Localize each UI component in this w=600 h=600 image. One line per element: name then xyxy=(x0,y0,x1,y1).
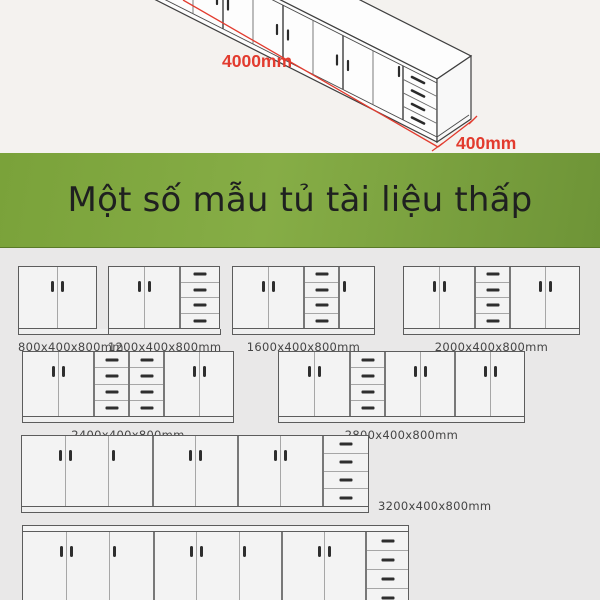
door-handle xyxy=(189,450,192,461)
hero-image: 4000mm 400mm xyxy=(0,0,600,153)
cabinet-door xyxy=(155,532,196,600)
cabinet-door xyxy=(511,267,545,328)
door-handle xyxy=(494,366,497,377)
cabinet-body xyxy=(108,266,220,329)
cabinet-body xyxy=(232,266,375,329)
drawer-handle xyxy=(381,597,394,600)
door-handle xyxy=(284,450,287,461)
cabinet-drawer xyxy=(95,400,128,416)
drawers-section xyxy=(179,267,219,328)
doors-section xyxy=(279,352,349,416)
cabinet-2400: 2400x400x800mm xyxy=(22,351,234,442)
drawer-handle xyxy=(140,358,153,361)
cabinet-door xyxy=(144,267,180,328)
cabinet-door xyxy=(545,267,580,328)
cabinet-door xyxy=(279,352,314,416)
cabinet-door xyxy=(386,352,420,416)
cabinet-plinth xyxy=(108,329,221,335)
drawer-handle xyxy=(340,478,353,481)
cabinet-drawer xyxy=(324,488,368,506)
cabinet-drawer xyxy=(181,297,219,313)
drawers-section xyxy=(322,436,368,506)
cabinet-door xyxy=(109,532,153,600)
drawer-handle xyxy=(315,288,328,291)
drawer-handle xyxy=(381,559,394,562)
doors-section xyxy=(404,267,474,328)
cabinet-drawer xyxy=(351,352,384,367)
cabinet-drawer xyxy=(324,436,368,453)
door-handle xyxy=(414,366,417,377)
doors-section xyxy=(233,267,303,328)
cabinet-drawer xyxy=(305,313,338,329)
door-handle xyxy=(424,366,427,377)
cabinet-drawer xyxy=(324,471,368,489)
cabinet-door xyxy=(233,267,268,328)
door-handle xyxy=(318,546,321,557)
cabinet-door xyxy=(165,352,199,416)
doors-section xyxy=(19,267,96,328)
drawer-handle xyxy=(340,496,353,499)
drawer-handle xyxy=(486,319,499,322)
cabinet-door xyxy=(314,352,350,416)
cabinet-body xyxy=(22,531,409,600)
doors-section xyxy=(109,267,179,328)
door-handle xyxy=(243,546,246,557)
cabinet-drawer xyxy=(351,384,384,400)
cabinet-door xyxy=(404,267,439,328)
drawer-handle xyxy=(340,461,353,464)
cabinet-drawer xyxy=(305,297,338,313)
cabinet-1200: 1200x400x800mm xyxy=(108,266,221,354)
door-handle xyxy=(274,450,277,461)
cabinet-door xyxy=(239,436,280,506)
cabinet-door xyxy=(195,436,237,506)
cabinet-drawer xyxy=(95,367,128,383)
door-handle xyxy=(148,281,151,292)
cabinet-door xyxy=(23,352,58,416)
doors-section xyxy=(454,352,524,416)
catalog-canvas: 800x400x800mm1200x400x800mm1600x400x800m… xyxy=(0,248,600,600)
doors-section xyxy=(281,532,365,600)
cabinet-door xyxy=(340,267,374,328)
cabinet-drawer xyxy=(130,384,163,400)
drawer-handle xyxy=(381,540,394,543)
drawers-section xyxy=(93,352,128,416)
door-handle xyxy=(61,281,64,292)
cabinet-door xyxy=(268,267,304,328)
cabinet-door xyxy=(19,267,57,328)
door-handle xyxy=(318,366,321,377)
cabinet-drawer xyxy=(130,352,163,367)
door-handle xyxy=(443,281,446,292)
door-handle xyxy=(51,281,54,292)
cabinet-3600-clipped xyxy=(22,525,409,600)
drawer-handle xyxy=(140,391,153,394)
drawer-handle xyxy=(194,273,207,276)
isometric-cabinet-drawing: 4000mm 400mm xyxy=(0,0,600,153)
cabinet-drawer xyxy=(95,384,128,400)
door-handle xyxy=(193,366,196,377)
door-handle xyxy=(272,281,275,292)
drawer-handle xyxy=(486,288,499,291)
doors-section xyxy=(22,436,152,506)
cabinet-plinth xyxy=(403,329,580,335)
cabinet-3200: 3200x400x800mm xyxy=(21,435,369,513)
drawer-handle xyxy=(315,304,328,307)
cabinet-door xyxy=(420,352,455,416)
drawers-section xyxy=(128,352,163,416)
cabinet-1600: 1600x400x800mm xyxy=(232,266,375,354)
cabinet-door xyxy=(280,436,322,506)
cabinet-2000: 2000x400x800mm xyxy=(403,266,580,354)
cabinet-drawer xyxy=(476,282,509,298)
cabinet-drawer xyxy=(476,297,509,313)
door-handle xyxy=(60,546,63,557)
cabinet-drawer xyxy=(367,532,408,550)
cabinet-body xyxy=(403,266,580,329)
cabinet-size-label: 3200x400x800mm xyxy=(378,499,491,513)
cabinet-door xyxy=(490,352,525,416)
cabinet-door xyxy=(108,436,152,506)
doors-section xyxy=(152,436,237,506)
drawers-section xyxy=(303,267,338,328)
cabinet-drawer xyxy=(130,400,163,416)
doors-section xyxy=(153,532,281,600)
cabinet-door xyxy=(239,532,281,600)
drawer-handle xyxy=(361,374,374,377)
cabinet-body xyxy=(22,351,234,417)
door-handle xyxy=(308,366,311,377)
drawer-handle xyxy=(381,578,394,581)
door-handle xyxy=(113,546,116,557)
doors-section xyxy=(23,352,93,416)
cabinet-drawer xyxy=(305,282,338,298)
door-handle xyxy=(433,281,436,292)
cabinet-plinth xyxy=(278,417,525,423)
drawer-handle xyxy=(140,374,153,377)
door-handle xyxy=(112,450,115,461)
door-handle xyxy=(70,546,73,557)
doors-section xyxy=(384,352,454,416)
door-handle xyxy=(328,546,331,557)
drawer-handle xyxy=(340,443,353,446)
drawers-section xyxy=(474,267,509,328)
door-handle xyxy=(52,366,55,377)
cabinet-drawer xyxy=(476,267,509,282)
door-handle xyxy=(69,450,72,461)
drawer-handle xyxy=(486,304,499,307)
cabinet-plinth xyxy=(21,507,369,513)
door-handle xyxy=(203,366,206,377)
cabinet-body xyxy=(21,435,369,507)
cabinet-drawer xyxy=(351,400,384,416)
cabinet-door xyxy=(196,532,238,600)
door-handle xyxy=(200,546,203,557)
door-handle xyxy=(190,546,193,557)
depth-dimension-label: 400mm xyxy=(456,133,516,153)
doors-section xyxy=(338,267,374,328)
door-handle xyxy=(484,366,487,377)
cabinet-plinth xyxy=(232,329,375,335)
cabinet-2800: 2800x400x800mm xyxy=(278,351,525,442)
cabinet-body xyxy=(18,266,97,329)
drawer-handle xyxy=(194,319,207,322)
door-handle xyxy=(539,281,542,292)
door-handle xyxy=(262,281,265,292)
cabinet-plinth xyxy=(22,417,234,423)
cabinet-door xyxy=(154,436,195,506)
cabinet-door xyxy=(439,267,475,328)
drawers-section xyxy=(365,532,408,600)
cabinet-drawer xyxy=(476,313,509,329)
drawer-handle xyxy=(315,319,328,322)
cabinet-door xyxy=(22,436,65,506)
cabinet-body xyxy=(278,351,525,417)
cabinet-drawer xyxy=(367,550,408,569)
drawers-section xyxy=(349,352,384,416)
doors-section xyxy=(509,267,579,328)
door-handle xyxy=(343,281,346,292)
door-handle xyxy=(138,281,141,292)
drawer-handle xyxy=(361,407,374,410)
section-title: Một số mẫu tủ tài liệu thấp xyxy=(68,180,533,220)
cabinet-door xyxy=(23,532,66,600)
drawer-handle xyxy=(105,407,118,410)
cabinet-drawer xyxy=(367,569,408,588)
banner: Một số mẫu tủ tài liệu thấp xyxy=(0,153,600,248)
length-dimension-label: 4000mm xyxy=(222,51,292,71)
cabinet-door xyxy=(456,352,490,416)
door-handle xyxy=(59,450,62,461)
cabinet-door xyxy=(199,352,234,416)
drawer-handle xyxy=(486,273,499,276)
cabinet-drawer xyxy=(95,352,128,367)
doors-section xyxy=(237,436,322,506)
cabinet-carcass xyxy=(150,0,471,142)
cabinet-door xyxy=(324,532,366,600)
doors-section xyxy=(23,532,153,600)
drawer-handle xyxy=(194,304,207,307)
cabinet-door xyxy=(65,436,109,506)
drawer-handle xyxy=(361,358,374,361)
cabinet-door xyxy=(57,267,96,328)
drawer-handle xyxy=(194,288,207,291)
door-handle xyxy=(62,366,65,377)
door-handle xyxy=(199,450,202,461)
cabinet-door xyxy=(283,532,324,600)
drawer-handle xyxy=(105,374,118,377)
cabinet-drawer xyxy=(324,453,368,471)
cabinet-drawer xyxy=(181,313,219,329)
cabinet-drawer xyxy=(181,282,219,298)
cabinet-door xyxy=(58,352,94,416)
drawer-handle xyxy=(140,407,153,410)
cabinet-drawer xyxy=(305,267,338,282)
cabinet-door xyxy=(109,267,144,328)
drawer-handle xyxy=(105,358,118,361)
cabinet-door xyxy=(66,532,110,600)
doors-section xyxy=(163,352,233,416)
cabinet-drawer xyxy=(351,367,384,383)
cabinet-drawer xyxy=(367,588,408,600)
drawer-handle xyxy=(315,273,328,276)
drawer-handle xyxy=(105,391,118,394)
cabinet-drawer xyxy=(130,367,163,383)
drawer-handle xyxy=(361,391,374,394)
door-handle xyxy=(549,281,552,292)
cabinet-drawer xyxy=(181,267,219,282)
